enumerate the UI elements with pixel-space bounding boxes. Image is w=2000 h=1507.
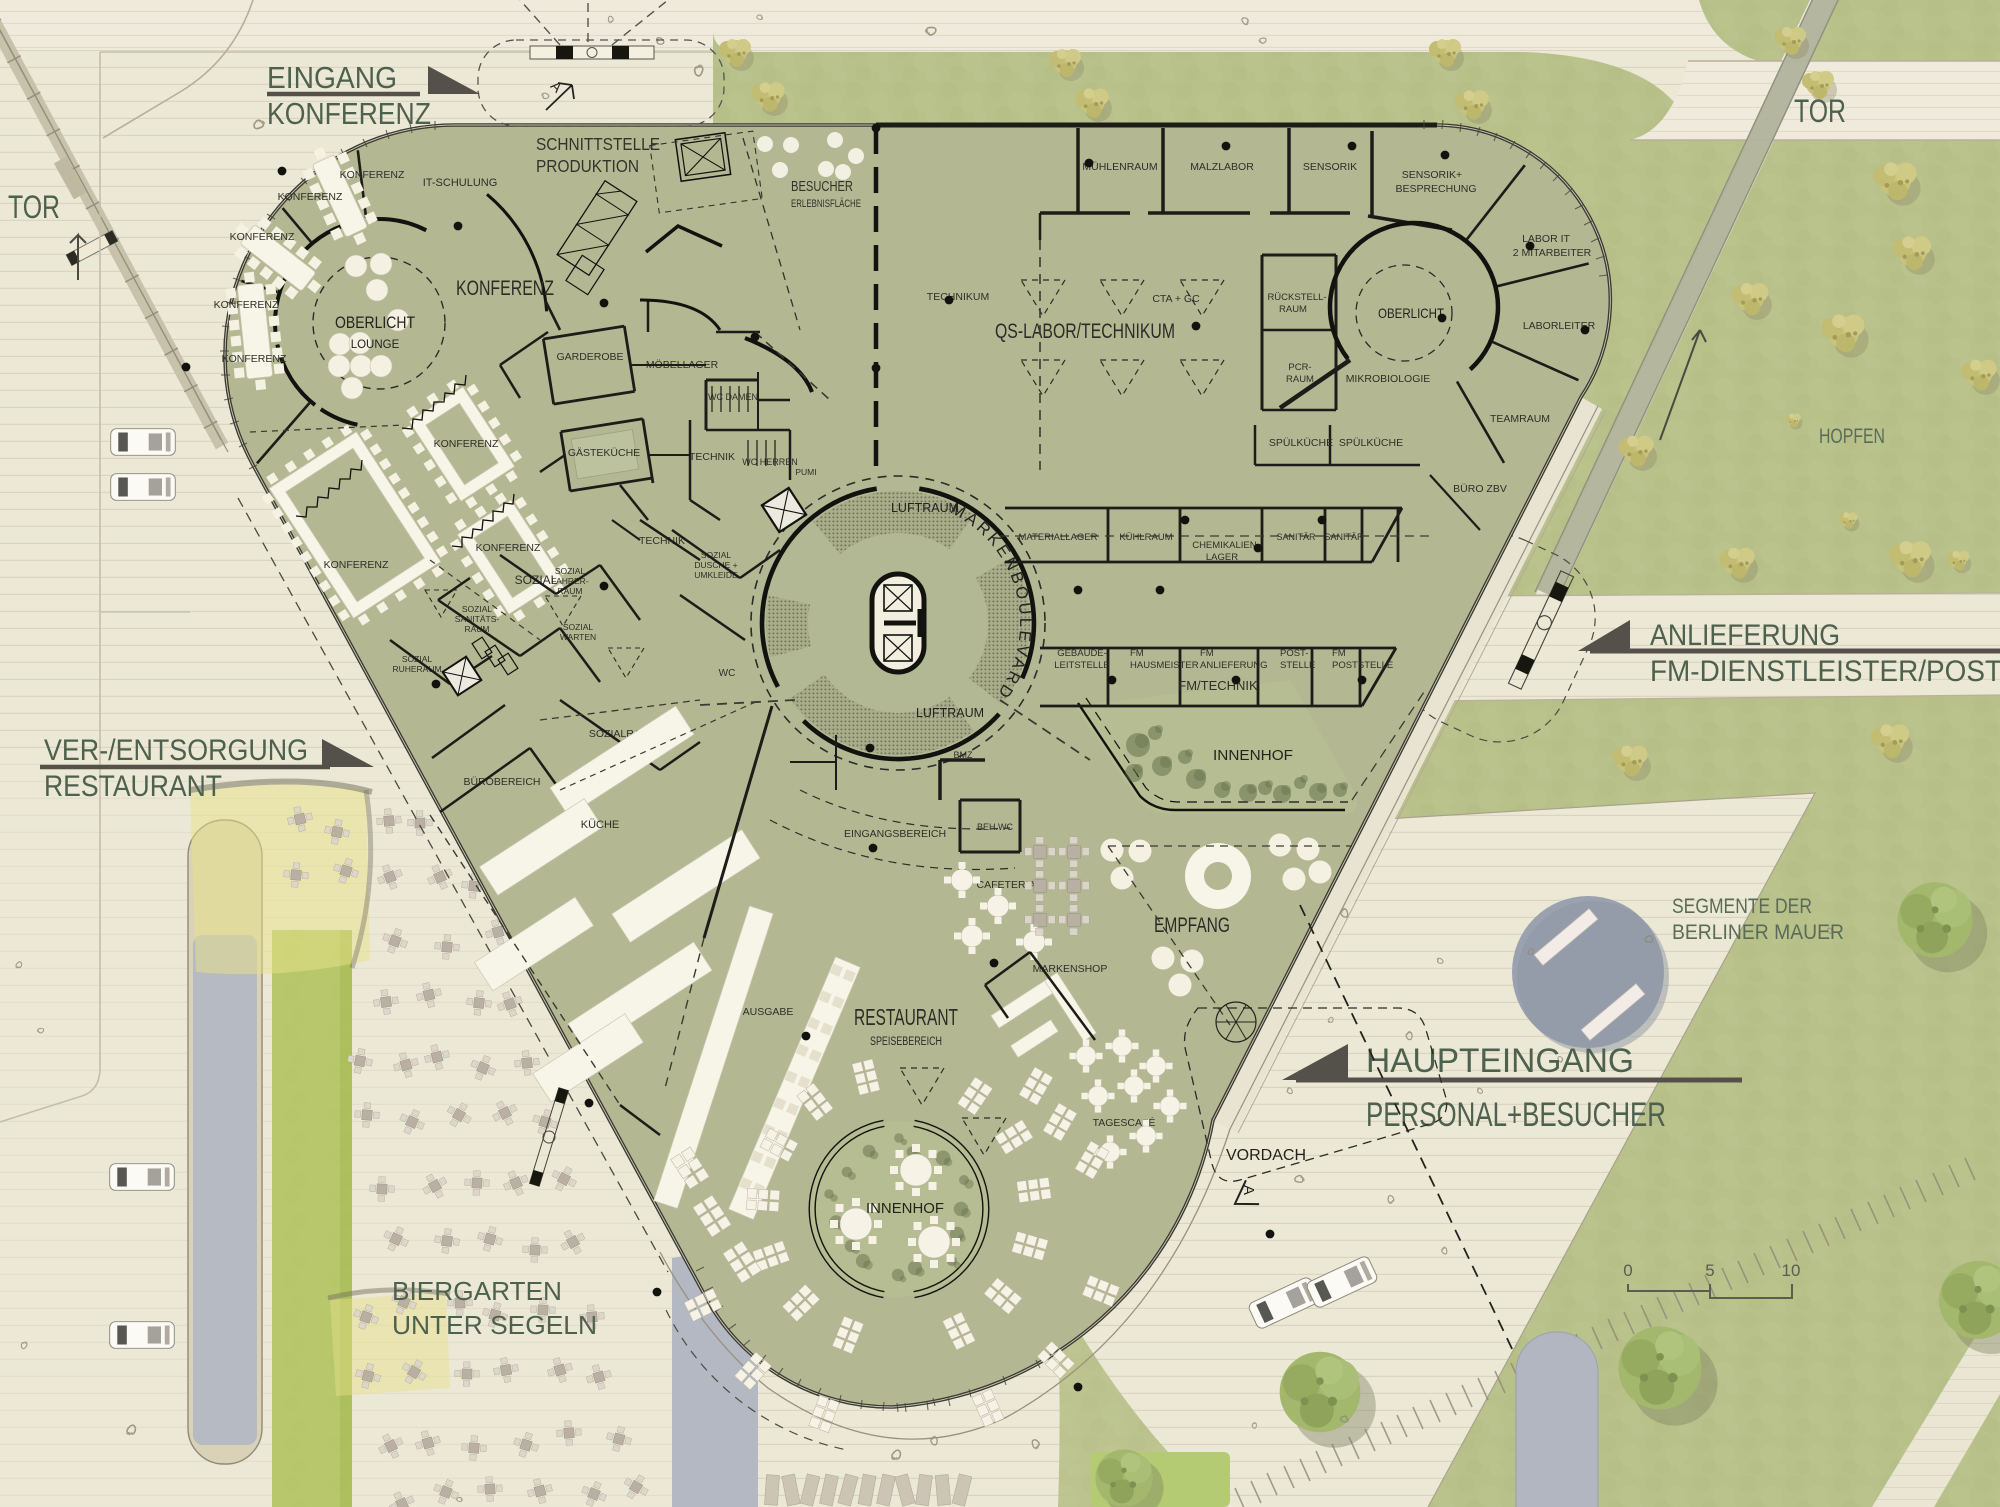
svg-text:RÜCKSTELL-: RÜCKSTELL-	[1267, 292, 1326, 303]
svg-text:MIKROBIOLOGIE: MIKROBIOLOGIE	[1346, 373, 1431, 385]
svg-text:LAGER: LAGER	[1206, 552, 1238, 563]
svg-text:BMZ: BMZ	[954, 750, 974, 760]
svg-text:ANLIEFERUNG: ANLIEFERUNG	[1650, 619, 1840, 652]
svg-text:FM: FM	[1332, 648, 1346, 659]
svg-text:CHEMIKALIEN-: CHEMIKALIEN-	[1192, 540, 1260, 551]
svg-text:CTA + GC: CTA + GC	[1152, 293, 1200, 305]
svg-text:SOZIAL: SOZIAL	[462, 604, 493, 614]
svg-text:RAUM: RAUM	[1279, 304, 1307, 315]
svg-text:HAUSMEISTER: HAUSMEISTER	[1130, 660, 1199, 671]
svg-text:STELLE: STELLE	[1280, 660, 1315, 671]
svg-text:HAUPTEINGANG: HAUPTEINGANG	[1366, 1042, 1634, 1080]
svg-text:WC: WC	[719, 668, 736, 679]
svg-text:SPEISEBEREICH: SPEISEBEREICH	[870, 1036, 942, 1048]
svg-text:ERLEBNISFLÄCHE: ERLEBNISFLÄCHE	[791, 198, 861, 210]
svg-text:BEH.WC: BEH.WC	[977, 822, 1014, 832]
svg-text:EMPFANG: EMPFANG	[1154, 914, 1230, 937]
svg-text:FM/TECHNIK: FM/TECHNIK	[1178, 678, 1258, 693]
svg-text:OBERLICHT: OBERLICHT	[1378, 305, 1444, 321]
svg-text:KONFERENZ: KONFERENZ	[476, 542, 541, 554]
svg-text:SENSORIK: SENSORIK	[1303, 161, 1357, 173]
svg-text:GÄSTEKÜCHE: GÄSTEKÜCHE	[568, 447, 640, 459]
svg-text:KÜHLRAUM: KÜHLRAUM	[1119, 532, 1172, 543]
svg-text:BÜRO ZBV: BÜRO ZBV	[1453, 483, 1507, 495]
svg-text:LUFTRAUM: LUFTRAUM	[891, 501, 959, 515]
svg-text:PERSONAL+BESUCHER: PERSONAL+BESUCHER	[1366, 1096, 1666, 1134]
svg-text:VER-/ENTSORGUNG: VER-/ENTSORGUNG	[44, 734, 308, 767]
svg-text:KONFERENZ: KONFERENZ	[324, 559, 389, 571]
svg-text:TOR: TOR	[8, 189, 60, 225]
svg-text:KÜCHE: KÜCHE	[581, 819, 620, 831]
svg-text:SANITÄR: SANITÄR	[1324, 532, 1364, 542]
svg-text:EINGANG: EINGANG	[267, 60, 397, 95]
svg-text:SPÜLKÜCHE: SPÜLKÜCHE	[1269, 437, 1333, 449]
svg-text:TECHNIKUM: TECHNIKUM	[927, 291, 989, 303]
svg-text:KONFERENZ: KONFERENZ	[230, 231, 295, 243]
svg-text:GEBÄUDE-: GEBÄUDE-	[1057, 648, 1107, 659]
svg-text:LOUNGE: LOUNGE	[351, 339, 400, 351]
svg-text:5: 5	[1705, 1261, 1714, 1280]
svg-text:SCHNITTSTELLE: SCHNITTSTELLE	[536, 134, 660, 154]
svg-text:TOR: TOR	[1794, 93, 1846, 129]
svg-text:A: A	[1240, 1185, 1257, 1195]
svg-text:KONFERENZ: KONFERENZ	[434, 438, 499, 450]
svg-text:2 MITARBEITER: 2 MITARBEITER	[1513, 247, 1592, 259]
svg-text:FM-DIENSTLEISTER/POST: FM-DIENSTLEISTER/POST	[1650, 655, 2000, 688]
svg-text:ANLIEFERUNG: ANLIEFERUNG	[1200, 660, 1268, 671]
svg-text:VORDACH: VORDACH	[1226, 1147, 1306, 1164]
svg-text:KONFERENZ: KONFERENZ	[278, 191, 343, 203]
svg-text:0: 0	[1623, 1261, 1632, 1280]
svg-text:SENSORIK+: SENSORIK+	[1402, 169, 1462, 181]
svg-text:EINGANGSBEREICH: EINGANGSBEREICH	[844, 828, 946, 840]
svg-text:UNTER SEGELN: UNTER SEGELN	[392, 1310, 597, 1340]
svg-text:BESUCHER: BESUCHER	[791, 178, 853, 195]
svg-text:OBERLICHT: OBERLICHT	[335, 313, 415, 332]
svg-text:WC DAMEN: WC DAMEN	[708, 392, 758, 402]
svg-text:10: 10	[1782, 1261, 1801, 1280]
svg-text:BESPRECHUNG: BESPRECHUNG	[1395, 183, 1476, 195]
svg-text:BIERGARTEN: BIERGARTEN	[392, 1276, 562, 1306]
svg-text:KONFERENZ: KONFERENZ	[456, 277, 554, 300]
svg-text:PRODUKTION: PRODUKTION	[536, 156, 639, 176]
svg-text:PUMI: PUMI	[795, 467, 816, 477]
svg-text:MATERIALLAGER: MATERIALLAGER	[1018, 532, 1097, 543]
svg-text:KONFERENZ: KONFERENZ	[222, 353, 287, 365]
svg-text:TEAMRAUM: TEAMRAUM	[1490, 413, 1550, 425]
svg-text:INNENHOF: INNENHOF	[1213, 747, 1293, 764]
svg-text:SANITÄR: SANITÄR	[1276, 532, 1316, 542]
svg-text:GARDEROBE: GARDEROBE	[556, 351, 623, 363]
svg-text:LEITSTELLE: LEITSTELLE	[1054, 660, 1109, 671]
svg-text:PCR-: PCR-	[1288, 362, 1311, 373]
svg-text:RESTAURANT: RESTAURANT	[854, 1004, 958, 1030]
svg-text:SPÜLKÜCHE: SPÜLKÜCHE	[1339, 437, 1403, 449]
svg-text:LUFTRAUM: LUFTRAUM	[916, 706, 984, 720]
svg-text:BERLINER MAUER: BERLINER MAUER	[1672, 921, 1844, 944]
svg-text:AUSGABE: AUSGABE	[743, 1006, 794, 1018]
svg-text:FM: FM	[1200, 648, 1214, 659]
svg-text:IT-SCHULUNG: IT-SCHULUNG	[423, 177, 498, 189]
svg-text:RESTAURANT: RESTAURANT	[44, 770, 222, 803]
svg-text:KONFERENZ: KONFERENZ	[340, 169, 405, 181]
svg-text:FM: FM	[1130, 648, 1144, 659]
svg-text:MALZLABOR: MALZLABOR	[1190, 161, 1254, 173]
svg-text:QS-LABOR/TECHNIKUM: QS-LABOR/TECHNIKUM	[995, 320, 1175, 343]
svg-text:INNENHOF: INNENHOF	[866, 1200, 944, 1217]
svg-text:POSTSTELLE: POSTSTELLE	[1332, 660, 1393, 671]
svg-text:MÜHLENRAUM: MÜHLENRAUM	[1082, 161, 1157, 173]
svg-text:TECHNIK: TECHNIK	[689, 451, 735, 463]
svg-text:KONFERENZ: KONFERENZ	[214, 299, 279, 311]
svg-text:SOZIAL: SOZIAL	[555, 566, 586, 576]
svg-text:POST-: POST-	[1280, 648, 1309, 659]
svg-text:HOPFEN: HOPFEN	[1819, 425, 1885, 448]
svg-text:SEGMENTE DER: SEGMENTE DER	[1672, 895, 1812, 918]
svg-text:RAUM: RAUM	[1286, 374, 1314, 385]
svg-text:KONFERENZ: KONFERENZ	[267, 96, 431, 131]
svg-text:SOZIAL: SOZIAL	[563, 622, 594, 632]
